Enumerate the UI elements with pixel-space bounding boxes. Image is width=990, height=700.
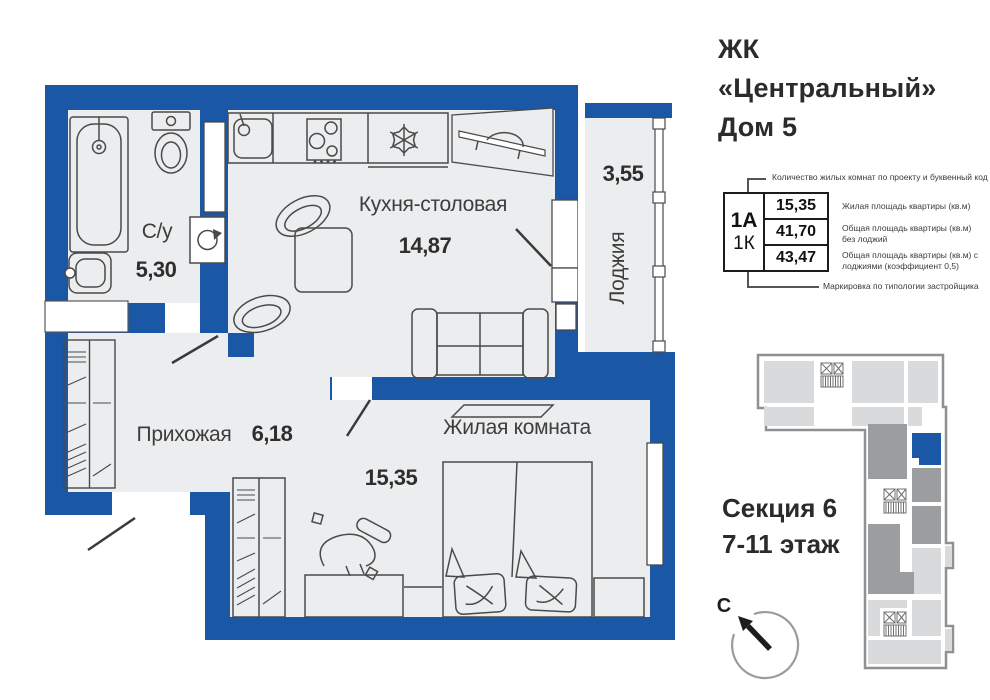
north-label: С	[717, 595, 731, 617]
floorplan-page: С/у 5,30 Кухня-столовая 14,87 3,55 Лоджи…	[0, 0, 990, 700]
leader-line	[747, 272, 749, 286]
kitchen-name: Кухня-столовая	[359, 193, 507, 216]
spec-values: 15,35 41,70 43,47	[765, 194, 827, 270]
annotation-bottom: Маркировка по типологии застройщика	[823, 281, 979, 292]
complex-title-line2: «Центральный»	[718, 69, 936, 108]
balcony-window	[552, 200, 578, 268]
floors-line: 7-11 этаж	[722, 526, 839, 562]
annotation-top: Количество жилых комнат по проекту и бук…	[772, 172, 988, 183]
living-window	[647, 443, 663, 565]
loggia-name: Лоджия	[606, 232, 629, 305]
loggia-area: 3,55	[603, 161, 644, 186]
niche	[45, 301, 128, 332]
leader-line	[747, 178, 766, 180]
annotation-living-area: Жилая площадь квартиры (кв.м)	[842, 201, 970, 212]
compass: С	[717, 595, 798, 678]
spec-area-with-loggia: 43,47	[765, 244, 827, 270]
spec-room-code: 1К	[733, 233, 755, 255]
annotation-area-no-loggia: Общая площадь квартиры (кв.м) без лоджий	[842, 223, 984, 244]
floor-plan: С/у 5,30 Кухня-столовая 14,87 3,55 Лоджи…	[45, 85, 675, 640]
complex-title-line1: ЖК	[718, 30, 936, 69]
spec-codes: 1А 1К	[725, 194, 765, 270]
section-line: Секция 6	[722, 490, 839, 526]
bath-name: С/у	[142, 220, 173, 243]
spec-living-area: 15,35	[765, 194, 827, 218]
section-floor-label: Секция 6 7-11 этаж	[722, 490, 839, 562]
shaft	[204, 122, 225, 212]
living-name: Жилая комната	[443, 416, 591, 439]
hall-area: 6,18	[252, 421, 293, 446]
annotation-area-with-loggia: Общая площадь квартиры (кв.м) с лоджиями…	[842, 250, 984, 271]
kitchen-area: 14,87	[399, 233, 452, 258]
north-arrow-icon	[748, 626, 770, 649]
spec-type-code: 1А	[731, 209, 758, 233]
leader-line	[747, 286, 819, 288]
leader-line	[747, 178, 749, 192]
washing-machine-icon	[190, 217, 225, 263]
spec-area-no-loggia: 41,70	[765, 218, 827, 244]
balcony-door	[552, 268, 578, 302]
complex-title: ЖК «Центральный» Дом 5	[718, 30, 936, 147]
loggia-glazing	[653, 118, 665, 352]
complex-title-line3: Дом 5	[718, 108, 936, 147]
living-area: 15,35	[365, 465, 418, 490]
apartment-spec-table: 1А 1К 15,35 41,70 43,47	[723, 192, 829, 272]
bath-area: 5,30	[136, 257, 177, 282]
hall-name: Прихожая	[137, 423, 232, 446]
